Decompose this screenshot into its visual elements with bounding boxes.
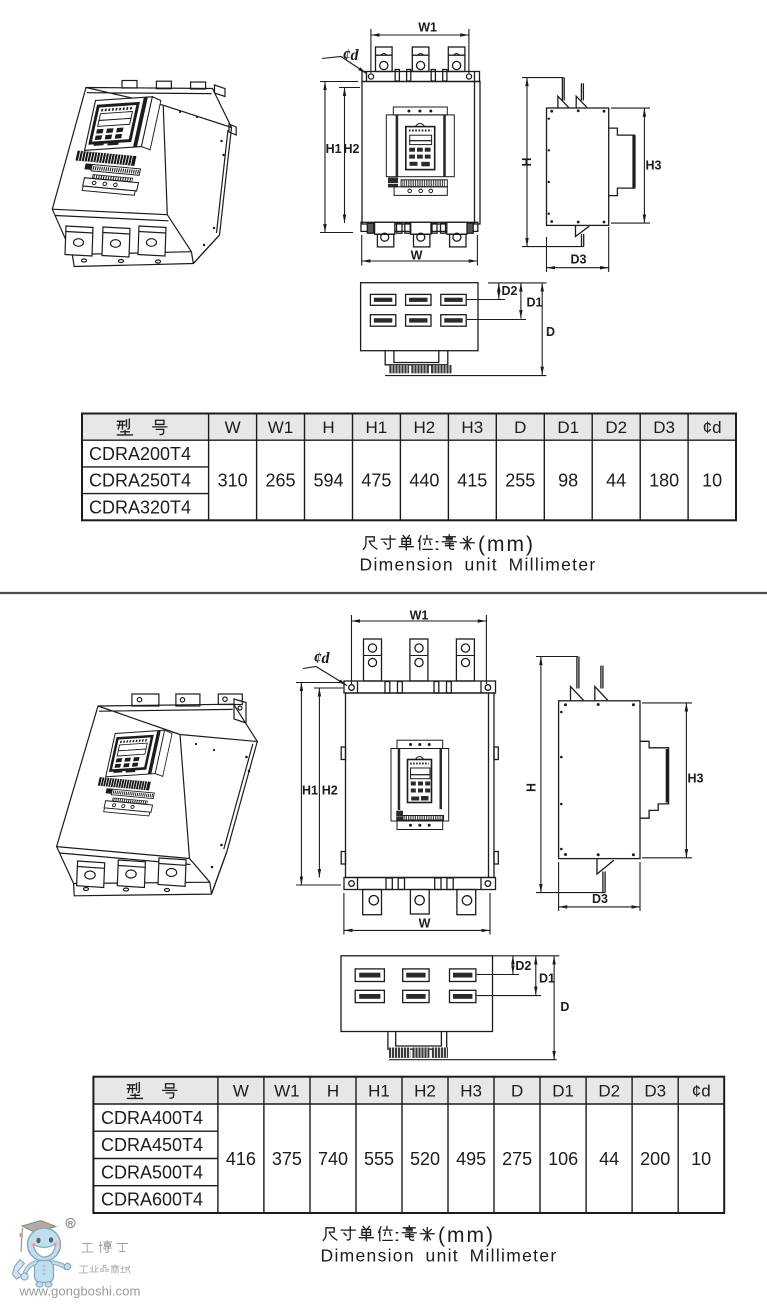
- svg-text:www.gongboshi.com: www.gongboshi.com: [19, 1284, 141, 1299]
- svg-text:W1: W1: [274, 1082, 300, 1101]
- svg-text:475: 475: [361, 471, 391, 491]
- svg-text:W1: W1: [268, 418, 294, 437]
- svg-text:D: D: [560, 1000, 569, 1014]
- svg-text:H2: H2: [344, 142, 360, 156]
- svg-text:H3: H3: [646, 159, 662, 173]
- svg-text:(mm): (mm): [438, 1224, 495, 1247]
- svg-text:D2: D2: [515, 959, 531, 973]
- svg-text:98: 98: [558, 471, 578, 491]
- svg-text:275: 275: [502, 1149, 532, 1169]
- svg-text:H3: H3: [460, 1082, 482, 1101]
- svg-text:R: R: [68, 1219, 74, 1228]
- svg-text:H1: H1: [326, 142, 342, 156]
- svg-text:D3: D3: [571, 253, 587, 267]
- svg-text:¢d: ¢d: [703, 418, 722, 437]
- svg-text:375: 375: [272, 1149, 302, 1169]
- svg-text:10: 10: [702, 471, 722, 491]
- svg-text:W1: W1: [410, 609, 429, 623]
- svg-text:¢d: ¢d: [314, 650, 331, 667]
- svg-text:310: 310: [218, 471, 248, 491]
- svg-text:106: 106: [548, 1149, 578, 1169]
- svg-text:H1: H1: [368, 1082, 390, 1101]
- svg-text:CDRA600T4: CDRA600T4: [101, 1190, 203, 1210]
- svg-text:CDRA450T4: CDRA450T4: [101, 1135, 203, 1155]
- svg-text:Dimension unit Millimeter: Dimension unit Millimeter: [321, 1246, 558, 1266]
- svg-text:Dimension unit Millimeter: Dimension unit Millimeter: [360, 555, 597, 575]
- svg-text:H2: H2: [414, 1082, 436, 1101]
- svg-text:180: 180: [649, 471, 679, 491]
- svg-text:D: D: [511, 1082, 523, 1101]
- svg-text:D3: D3: [592, 892, 608, 906]
- svg-text:495: 495: [456, 1149, 486, 1169]
- svg-text:CDRA200T4: CDRA200T4: [89, 444, 191, 464]
- svg-text:H1: H1: [302, 784, 318, 798]
- svg-text:W: W: [411, 249, 423, 263]
- svg-text:594: 594: [313, 471, 343, 491]
- svg-text:H: H: [520, 157, 534, 166]
- svg-text:265: 265: [265, 471, 295, 491]
- svg-text:CDRA500T4: CDRA500T4: [101, 1162, 203, 1182]
- svg-text:H: H: [322, 418, 334, 437]
- svg-text:H3: H3: [688, 772, 704, 786]
- svg-text:H2: H2: [414, 418, 436, 437]
- svg-text:H: H: [525, 783, 539, 792]
- svg-text:W: W: [233, 1082, 249, 1101]
- svg-text:416: 416: [226, 1149, 256, 1169]
- svg-text:D2: D2: [598, 1082, 620, 1101]
- svg-text:10: 10: [691, 1149, 711, 1169]
- svg-text:W: W: [225, 418, 241, 437]
- svg-text:¢d: ¢d: [343, 47, 360, 64]
- svg-text:D1: D1: [557, 418, 579, 437]
- svg-text:D3: D3: [653, 418, 675, 437]
- svg-text:D: D: [546, 325, 555, 339]
- svg-text:44: 44: [606, 471, 626, 491]
- svg-text:D1: D1: [552, 1082, 574, 1101]
- svg-text:W: W: [419, 916, 431, 930]
- svg-text:CDRA320T4: CDRA320T4: [89, 497, 191, 517]
- svg-text:44: 44: [599, 1149, 619, 1169]
- svg-text:CDRA400T4: CDRA400T4: [101, 1108, 203, 1128]
- svg-text:D: D: [514, 418, 526, 437]
- svg-text:200: 200: [640, 1149, 670, 1169]
- svg-text:H2: H2: [322, 784, 338, 798]
- svg-text:555: 555: [364, 1149, 394, 1169]
- svg-text:255: 255: [505, 471, 535, 491]
- svg-text:D3: D3: [644, 1082, 666, 1101]
- svg-text:W1: W1: [418, 21, 437, 35]
- svg-text:¢d: ¢d: [692, 1082, 711, 1101]
- svg-text:CDRA250T4: CDRA250T4: [89, 471, 191, 491]
- svg-text:H3: H3: [461, 418, 483, 437]
- svg-text:H1: H1: [366, 418, 388, 437]
- svg-text:H: H: [327, 1082, 339, 1101]
- svg-text:D2: D2: [502, 284, 518, 298]
- svg-text:440: 440: [409, 471, 439, 491]
- svg-text:520: 520: [410, 1149, 440, 1169]
- svg-text:740: 740: [318, 1149, 348, 1169]
- svg-text:D1: D1: [527, 296, 543, 310]
- svg-text:D1: D1: [539, 972, 555, 986]
- svg-text:415: 415: [457, 471, 487, 491]
- svg-text:(mm): (mm): [478, 533, 535, 556]
- svg-text:D2: D2: [605, 418, 627, 437]
